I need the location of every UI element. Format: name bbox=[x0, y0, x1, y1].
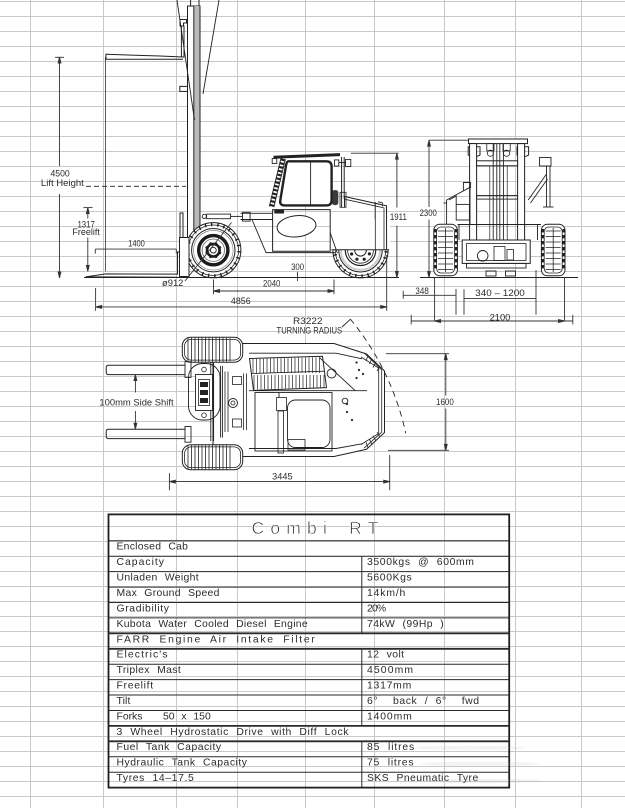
svg-text:3 Wheel Hydrostatic Drive with: 3 Wheel Hydrostatic Drive with Diff Lock bbox=[117, 727, 350, 738]
svg-text:20%: 20% bbox=[367, 603, 387, 614]
svg-text:1600: 1600 bbox=[436, 397, 454, 407]
svg-text:3500kgs @ 600mm: 3500kgs @ 600mm bbox=[367, 557, 475, 568]
svg-text:Forks 50 x 150: Forks 50 x 150 bbox=[117, 711, 212, 722]
svg-text:1911: 1911 bbox=[390, 212, 407, 222]
svg-text:1400: 1400 bbox=[128, 239, 145, 249]
svg-text:2100: 2100 bbox=[490, 312, 511, 322]
svg-text:FARR Engine Air Intake Filter: FARR Engine Air Intake Filter bbox=[117, 634, 316, 645]
svg-text:300: 300 bbox=[291, 262, 304, 272]
svg-text:3445: 3445 bbox=[272, 471, 293, 481]
svg-text:Enclosed Cab: Enclosed Cab bbox=[117, 542, 189, 553]
svg-text:Triplex Mast: Triplex Mast bbox=[117, 665, 182, 676]
svg-text:340 – 1200: 340 – 1200 bbox=[475, 288, 525, 298]
svg-text:12 volt: 12 volt bbox=[367, 650, 405, 661]
svg-text:85 litres: 85 litres bbox=[367, 742, 415, 753]
svg-text:Tyres 14–17.5: Tyres 14–17.5 bbox=[117, 773, 195, 784]
svg-text:Capacity: Capacity bbox=[117, 557, 165, 568]
svg-text:1317mm: 1317mm bbox=[367, 681, 412, 692]
svg-text:Combi RT: Combi RT bbox=[252, 518, 385, 538]
svg-text:Kubota Water Cooled Diesel Eng: Kubota Water Cooled Diesel Engine bbox=[117, 619, 309, 630]
svg-text:2300: 2300 bbox=[420, 208, 437, 218]
svg-text:Electric's: Electric's bbox=[117, 650, 169, 661]
svg-text:2040: 2040 bbox=[263, 279, 280, 289]
svg-text:Lift Height: Lift Height bbox=[41, 178, 85, 188]
svg-text:Freelift: Freelift bbox=[72, 227, 100, 237]
svg-text:Gradibility: Gradibility bbox=[117, 603, 170, 614]
svg-text:74kW (99Hp ): 74kW (99Hp ) bbox=[367, 619, 444, 630]
svg-text:Tilt: Tilt bbox=[117, 696, 131, 707]
svg-text:348: 348 bbox=[415, 286, 428, 296]
svg-text:4500mm: 4500mm bbox=[367, 665, 414, 676]
svg-text:Freelift: Freelift bbox=[117, 681, 154, 692]
svg-text:100mm Side Shift: 100mm Side Shift bbox=[99, 397, 174, 407]
svg-text:5600Kgs: 5600Kgs bbox=[367, 573, 412, 584]
svg-text:Unladen Weight: Unladen Weight bbox=[117, 573, 200, 584]
svg-text:6° back / 6° fwd: 6° back / 6° fwd bbox=[367, 696, 480, 707]
svg-text:75 litres: 75 litres bbox=[367, 758, 414, 769]
svg-text:Max Ground Speed: Max Ground Speed bbox=[117, 588, 221, 599]
svg-text:4500: 4500 bbox=[51, 169, 70, 179]
svg-text:TURNING RADIUS: TURNING RADIUS bbox=[277, 325, 343, 335]
svg-text:ø912: ø912 bbox=[162, 278, 184, 288]
svg-text:Hydraulic Tank Capacity: Hydraulic Tank Capacity bbox=[117, 758, 248, 769]
svg-text:4856: 4856 bbox=[231, 296, 251, 306]
svg-text:Fuel Tank Capacity: Fuel Tank Capacity bbox=[117, 742, 222, 753]
svg-text:14km/h: 14km/h bbox=[367, 588, 406, 599]
svg-text:1400mm: 1400mm bbox=[367, 711, 412, 722]
